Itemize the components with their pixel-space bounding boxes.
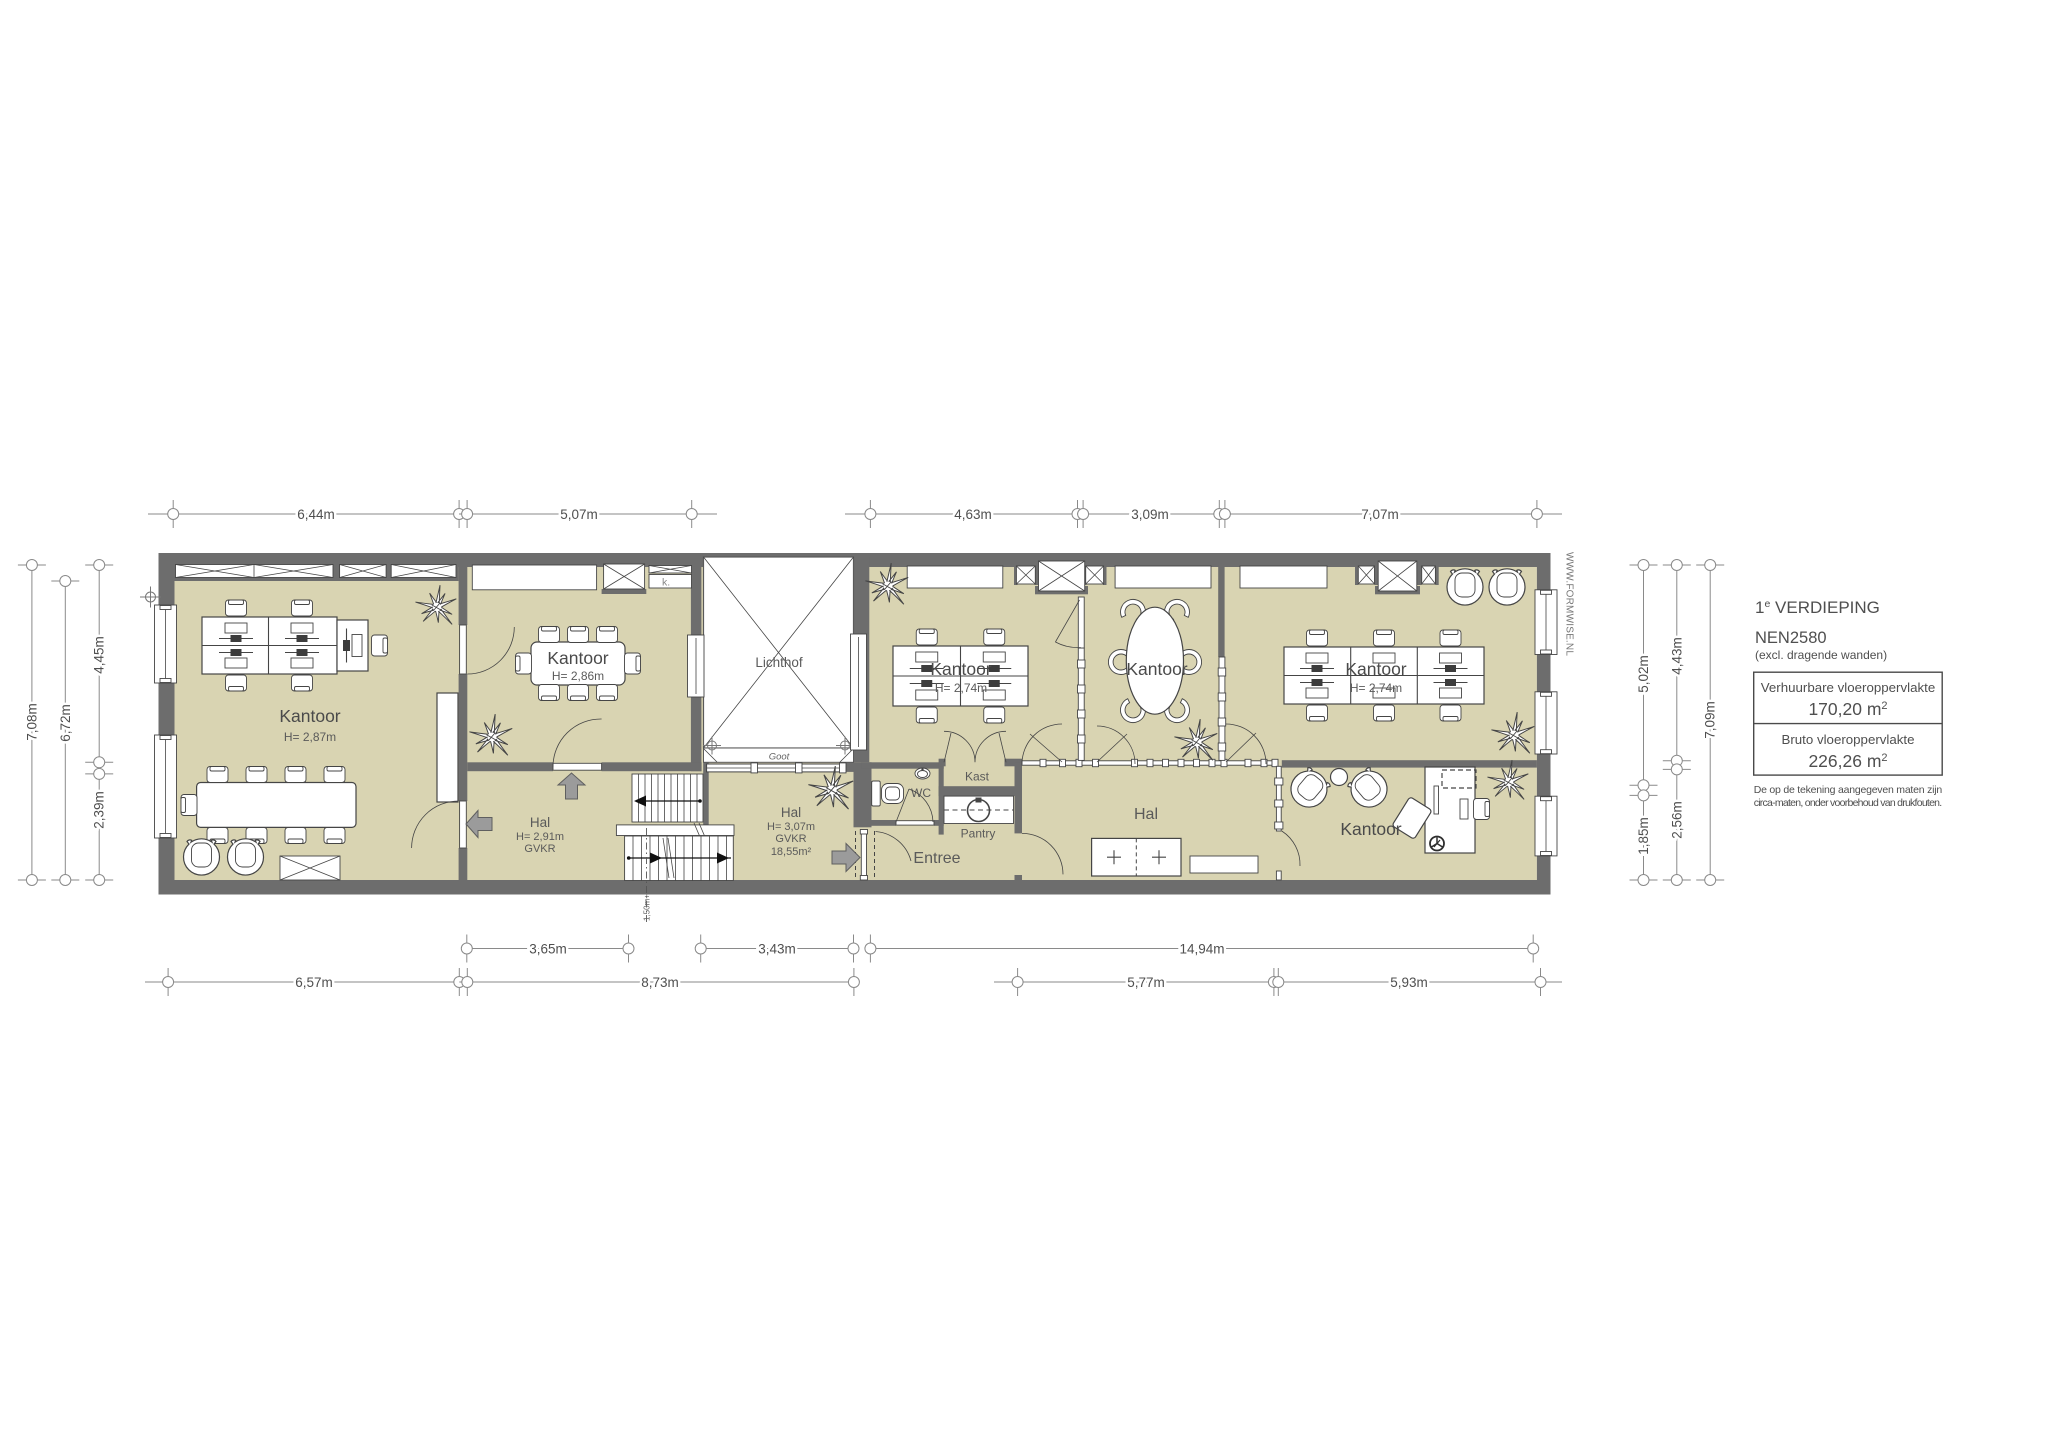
- svg-text:7,07m: 7,07m: [1361, 507, 1399, 522]
- svg-text:GVKR: GVKR: [775, 833, 806, 845]
- svg-text:3,09m: 3,09m: [1131, 507, 1169, 522]
- svg-text:Kantoor: Kantoor: [930, 659, 991, 679]
- svg-text:Hal: Hal: [781, 805, 801, 820]
- svg-text:NEN2580: NEN2580: [1755, 629, 1827, 647]
- svg-text:H= 2,86m: H= 2,86m: [552, 669, 604, 683]
- svg-text:H= 2,74m: H= 2,74m: [935, 681, 987, 695]
- svg-text:1,50m+: 1,50m+: [643, 894, 652, 921]
- svg-text:Goot: Goot: [769, 752, 790, 763]
- svg-text:Kantoor: Kantoor: [547, 648, 608, 668]
- svg-text:Kantoor: Kantoor: [1345, 659, 1406, 679]
- svg-text:8,73m: 8,73m: [641, 975, 679, 990]
- svg-text:H= 2,74m: H= 2,74m: [1350, 681, 1402, 695]
- svg-text:226,26 m2: 226,26 m2: [1808, 751, 1887, 771]
- svg-text:14,94m: 14,94m: [1179, 942, 1224, 957]
- svg-text:Verhuurbare vloeroppervlakte: Verhuurbare vloeroppervlakte: [1761, 680, 1935, 695]
- svg-text:Hal: Hal: [1134, 806, 1158, 823]
- svg-text:4,45m: 4,45m: [92, 636, 107, 674]
- svg-text:7,08m: 7,08m: [24, 703, 39, 741]
- svg-text:4,43m: 4,43m: [1669, 637, 1684, 675]
- svg-text:4,63m: 4,63m: [954, 507, 992, 522]
- svg-text:H= 2,91m: H= 2,91m: [516, 831, 564, 843]
- svg-text:H= 3,07m: H= 3,07m: [767, 821, 815, 833]
- svg-text:5,02m: 5,02m: [1636, 655, 1651, 693]
- svg-text:De op de tekening aangegeven m: De op de tekening aangegeven maten zijn: [1754, 784, 1943, 796]
- svg-text:6,57m: 6,57m: [295, 975, 333, 990]
- svg-text:WWW.FORMWISE.NL: WWW.FORMWISE.NL: [1564, 552, 1575, 656]
- svg-text:Kantoor: Kantoor: [1340, 819, 1401, 839]
- svg-text:5,77m: 5,77m: [1127, 975, 1165, 990]
- svg-text:Kantoor: Kantoor: [1126, 659, 1187, 679]
- svg-text:(excl. dragende wanden): (excl. dragende wanden): [1755, 648, 1887, 662]
- svg-text:2,39m: 2,39m: [92, 791, 107, 829]
- svg-text:5,07m: 5,07m: [560, 507, 598, 522]
- svg-text:Pantry: Pantry: [961, 827, 996, 841]
- svg-text:6,72m: 6,72m: [58, 704, 73, 742]
- svg-text:Bruto vloeroppervlakte: Bruto vloeroppervlakte: [1781, 732, 1914, 747]
- svg-text:Kantoor: Kantoor: [279, 706, 340, 726]
- svg-text:7,09m: 7,09m: [1703, 701, 1718, 739]
- svg-text:H= 2,87m: H= 2,87m: [284, 730, 336, 744]
- svg-text:1e VERDIEPING: 1e VERDIEPING: [1755, 598, 1880, 617]
- svg-text:170,20 m2: 170,20 m2: [1808, 699, 1887, 719]
- svg-text:2,56m: 2,56m: [1669, 801, 1684, 839]
- svg-text:18,55m²: 18,55m²: [771, 846, 812, 858]
- svg-text:circa-maten, onder voorbehoud: circa-maten, onder voorbehoud van drukfo…: [1754, 797, 1943, 809]
- svg-text:WC: WC: [911, 786, 931, 800]
- svg-text:k.: k.: [662, 577, 670, 589]
- svg-text:3,43m: 3,43m: [758, 942, 796, 957]
- svg-text:Lichthof: Lichthof: [755, 655, 803, 670]
- svg-text:Kast: Kast: [965, 770, 990, 784]
- svg-text:5,93m: 5,93m: [1390, 975, 1428, 990]
- svg-text:Entree: Entree: [913, 850, 960, 867]
- svg-text:Hal: Hal: [530, 815, 550, 830]
- svg-text:3,65m: 3,65m: [529, 942, 567, 957]
- svg-text:6,44m: 6,44m: [297, 507, 335, 522]
- svg-text:1,85m: 1,85m: [1636, 817, 1651, 855]
- svg-text:GVKR: GVKR: [524, 843, 555, 855]
